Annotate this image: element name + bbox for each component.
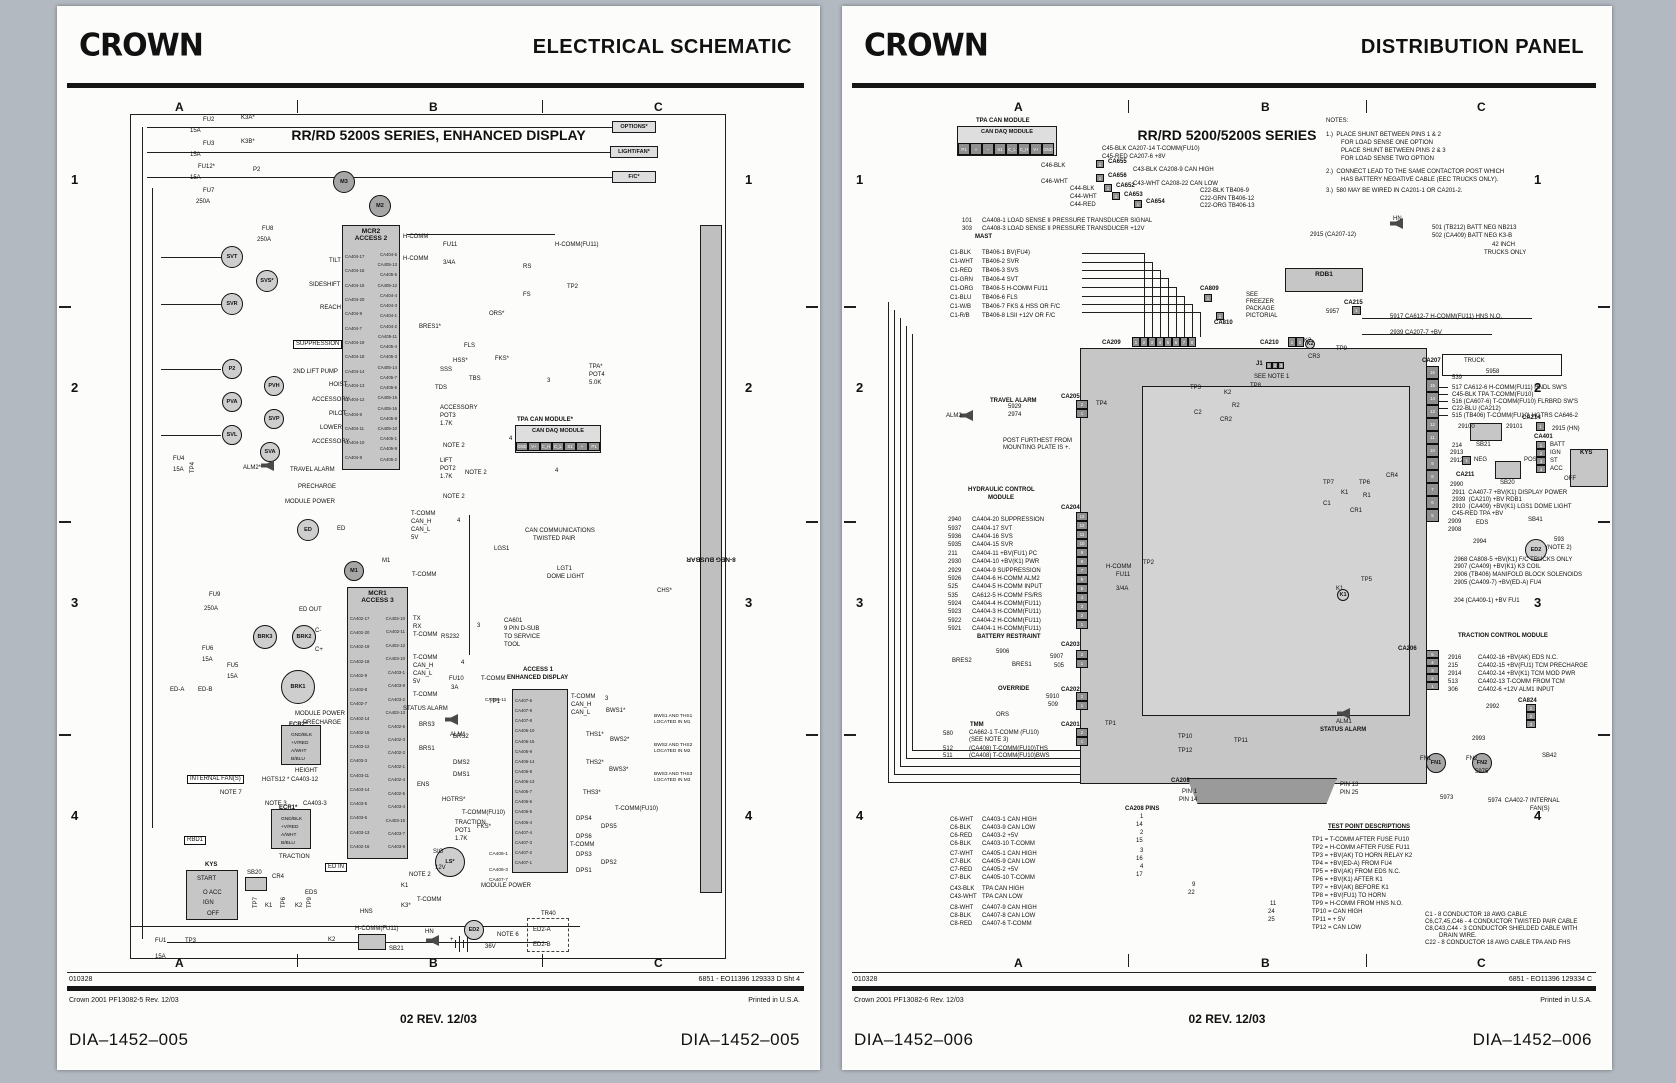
component-circle: ED2 <box>464 920 484 940</box>
wire-line <box>130 114 131 959</box>
connector-pin: 1 <box>1076 620 1088 629</box>
grid-letter: C <box>654 100 663 114</box>
schem-label: SB42 <box>1542 753 1557 760</box>
connector-pin: 5 <box>1164 337 1172 347</box>
block-label: LIGHT/FAN* <box>611 147 657 155</box>
schem-label: POT1 <box>455 828 471 835</box>
schem-label: POT3 <box>440 413 456 420</box>
schem-label: 4 <box>461 660 464 667</box>
schem-label: TB406-3 SVS <box>982 268 1019 275</box>
row-number: 4 <box>745 808 752 823</box>
schem-label: 15A <box>227 674 238 681</box>
schem-label: POST FURTHEST FROM <box>1003 438 1072 445</box>
row-number: 3 <box>71 595 78 610</box>
speaker-icon <box>445 714 458 725</box>
grid-letter: A <box>1014 956 1023 970</box>
connector-strip: 21 <box>1076 400 1088 418</box>
schem-label: 17 <box>1136 872 1143 879</box>
row-number: 1 <box>856 172 863 187</box>
schem-label: C45-BLK TPA T-COMM(FU10) <box>1452 392 1533 399</box>
schem-label: CA404-15 SVR <box>972 542 1013 549</box>
schem-label: CA201 <box>1061 722 1080 729</box>
document-canvas: AABBCC11223344MCR2ACCESS 2CA404-17 CA404… <box>0 0 1676 1083</box>
schem-label: ED OUT <box>299 607 322 614</box>
page-electrical-schematic: AABBCC11223344MCR2ACCESS 2CA404-17 CA404… <box>57 6 820 1070</box>
schem-label: TP7 = +BV(AK) BEFORE K1 <box>1312 885 1389 892</box>
connector-pin: 7 <box>1180 337 1188 347</box>
schem-label: ALM2* <box>243 465 261 472</box>
printed-note: Printed in U.S.A. <box>748 997 800 1004</box>
schem-label: CA407-9 CAN HIGH <box>982 905 1037 912</box>
schem-label: CA403-3 <box>303 801 327 808</box>
wire-line <box>463 940 464 948</box>
schem-label: CA654 <box>1146 199 1165 206</box>
schem-label: C46-BLK <box>1041 163 1065 170</box>
wire-line <box>1366 100 1367 113</box>
schem-label: 511 <box>943 753 953 760</box>
schem-label: 29101 <box>1506 424 1523 431</box>
schem-label: T-COMM <box>411 511 435 518</box>
schem-label: PLACE SHUNT BETWEEN PINS 2 & 3 <box>1341 148 1446 155</box>
crown-logo: CROWN <box>864 27 988 64</box>
schem-label: EDS <box>305 890 317 897</box>
schem-label: DPS3 <box>576 852 592 859</box>
schem-label: ECR1* <box>279 805 297 812</box>
connector-strip: 21 <box>1076 692 1088 710</box>
schem-label: H-COMM <box>1106 564 1131 571</box>
schem-label: TP6 <box>281 897 288 908</box>
wire-line <box>1144 253 1145 337</box>
schem-label: CA402-6 +12V ALM1 INPUT <box>1478 687 1554 694</box>
schem-label: POT2 <box>440 466 456 473</box>
schem-label: K1 <box>401 883 408 890</box>
schem-label: + <box>450 937 454 944</box>
wire-line <box>888 302 889 782</box>
schem-label: POT4 <box>589 372 605 379</box>
component-circle: SVA <box>260 442 280 462</box>
component-circle: M1 <box>344 561 364 581</box>
wire-line <box>1176 287 1177 337</box>
connector-pin: 1 <box>1104 184 1112 192</box>
schem-label: CA404-17 SVT <box>972 526 1012 533</box>
wire-line <box>1082 312 1200 313</box>
wire-line <box>59 306 71 308</box>
speaker-icon <box>426 935 439 946</box>
schem-label: CAN COMMUNICATIONS <box>525 528 595 535</box>
doc-number-right: DIA–1452–006 <box>1473 1030 1592 1050</box>
grid-letter: A <box>175 100 184 114</box>
wire-line <box>1082 262 1152 263</box>
schem-label: OFF <box>207 911 219 918</box>
schem-label: ALM2 <box>946 413 962 420</box>
connector-strip: 13121110987654321 <box>1076 512 1088 629</box>
component-circle: PVH <box>264 376 284 396</box>
schem-label: 2.) CONNECT LEAD TO THE SAME CONTACTOR P… <box>1326 169 1504 176</box>
schem-label: C1-W/B <box>950 304 971 311</box>
schem-label: 101 <box>962 218 972 225</box>
schem-label: FAN(S) <box>1530 806 1550 813</box>
component-circle: BRK3 <box>253 625 277 649</box>
schem-label: CA401 <box>1534 434 1553 441</box>
wire-line <box>459 936 460 952</box>
schem-label: 2929 <box>948 568 961 575</box>
connector-strip: 12 <box>1288 337 1304 347</box>
schem-label: 5917 CA612-7 H-COMM(FU11) HNS N.O. <box>1390 314 1502 321</box>
schem-label: 513 <box>1448 679 1458 686</box>
schem-label: 5906 <box>996 649 1009 656</box>
revision: 02 REV. 12/03 <box>57 1012 820 1026</box>
connector-pin: C_H <box>1018 143 1030 155</box>
connector-pin: 4 <box>1076 593 1088 602</box>
schem-label: (SEE NOTE 3) <box>969 737 1008 744</box>
schem-label: C22-BLK TB406-9 <box>1200 188 1249 195</box>
connector-pin: 1 <box>1288 337 1296 347</box>
wire-line <box>542 100 543 113</box>
schem-label: TB406-7 FKS & HSS OR F/C <box>982 304 1060 311</box>
schem-label: HN <box>1393 216 1402 223</box>
schem-label: CA404-16 SVS <box>972 534 1013 541</box>
schem-label: CA403-1 CAN HIGH <box>982 817 1037 824</box>
connector-strip: 12345678 <box>1132 337 1196 347</box>
schem-label: FU5 <box>227 663 238 670</box>
schem-label: TB406-5 H-COMM FU11 <box>982 286 1048 293</box>
schem-label: 3 <box>1140 848 1143 855</box>
schem-label: TBS <box>469 376 481 383</box>
connector-pin: 1 <box>1096 174 1104 182</box>
schem-label: A/WHT <box>281 833 296 838</box>
schem-label: CA405-2 +5V <box>982 867 1018 874</box>
schem-label: CAN_H <box>571 702 591 709</box>
schem-label: TB406-1 BV(FU4) <box>982 250 1030 257</box>
schem-label: 9 <box>1192 882 1195 889</box>
schem-label: FU2 <box>203 117 214 124</box>
grid-letter: B <box>1261 956 1270 970</box>
schem-label: 2968 CA808-5 +BV(K1) F/C TRUCKS ONLY <box>1454 557 1572 564</box>
connector-pin: 3 <box>1148 337 1156 347</box>
wire-line <box>407 234 555 235</box>
schem-label: CAN_L <box>571 710 590 717</box>
schem-label: KYS <box>205 862 217 869</box>
schem-label: 15A <box>190 152 201 159</box>
schem-label: LOCATED IN M2 <box>654 749 690 754</box>
schem-label: TB406-8 LSII +12V OR F/C <box>982 313 1055 320</box>
schem-label: 2940 <box>948 517 961 524</box>
schem-label: ACCESSORY <box>312 397 350 404</box>
schem-label: CR3 <box>1308 354 1320 361</box>
schem-label: CA404-20 SUPPRESSION <box>972 517 1044 524</box>
schem-label: TP7 <box>253 897 260 908</box>
schem-label: 525 <box>948 584 958 591</box>
footer-bar <box>852 986 1596 991</box>
schem-label: CA408-3 LOAD SENSE II PRESSURE TRANSDUCE… <box>982 226 1144 233</box>
schem-label: START <box>197 876 216 883</box>
component-circle: P2 <box>222 359 242 379</box>
schem-label: C22-ORG TB406-13 <box>1200 203 1255 210</box>
schem-label: CA202 <box>1061 687 1080 694</box>
schem-label: C43-BLK CA208-9 CAN HIGH <box>1133 167 1214 174</box>
connector-pin: 14 <box>1426 392 1439 405</box>
schem-label: TP4 <box>1096 401 1107 408</box>
schem-label: 12V <box>435 865 446 872</box>
schem-label: ED2-B <box>533 942 551 949</box>
wire-line <box>59 734 71 736</box>
schem-label: 25 <box>1268 917 1275 924</box>
schem-label: LGS1 <box>494 546 509 553</box>
schem-label: T-COMM <box>571 694 595 701</box>
connector-pin: 4 <box>1156 337 1164 347</box>
connector-strip: 1 <box>1104 184 1112 192</box>
footer-bar <box>67 986 804 991</box>
schem-label: PACKAGE <box>1246 306 1275 313</box>
schem-label: C7-BLK <box>950 859 971 866</box>
schem-label: SB20 <box>247 870 262 877</box>
schem-label: H-COMM <box>403 256 428 263</box>
connector-pin: P1 <box>958 143 970 155</box>
schem-label: K1 <box>1341 490 1348 497</box>
schem-label: C8,C43,C44 - 3 CONDUCTOR SHIELDED CABLE … <box>1425 926 1577 933</box>
wire-line <box>161 257 221 258</box>
schem-label: BWS3* <box>609 767 628 774</box>
schem-label: C8-BLK <box>950 913 971 920</box>
connector-pin: 3 <box>1076 602 1088 611</box>
component-circle: SVS* <box>256 270 278 292</box>
module-block <box>245 877 267 891</box>
wire-line <box>1366 954 1367 967</box>
schem-label: CA204 <box>1061 505 1080 512</box>
schem-label: PIN 1 <box>1182 789 1197 796</box>
schem-label: 2911 CA407-7 +BV(K1) DISPLAY POWER <box>1452 490 1567 497</box>
module-block: F/C* <box>612 171 656 183</box>
schem-label: SB21 <box>389 946 404 953</box>
schem-label: OVERRIDE <box>998 686 1029 693</box>
footer-rule <box>852 972 1596 973</box>
schem-label: ED-A <box>170 687 184 694</box>
schem-label: C46-WHT <box>1041 179 1068 186</box>
schem-label: PIN 13 <box>1340 782 1358 789</box>
connector-pin: 1 <box>1112 192 1120 200</box>
schem-label: SSS <box>440 367 452 374</box>
schem-label: H-COMM(FU11) <box>355 926 399 933</box>
footer-code-right: 6851 - EO11396 129334 C <box>1509 976 1592 983</box>
wire-line <box>161 369 221 370</box>
schem-label: R2 <box>1232 403 1240 410</box>
wire-line <box>130 958 726 959</box>
schem-label: J1 <box>1256 361 1263 368</box>
schem-label: CA407-8 CAN LOW <box>982 913 1035 920</box>
row-number: 1 <box>71 172 78 187</box>
schem-label: BRS2 <box>453 734 469 741</box>
schem-label: C22-GRN TB406-12 <box>1200 196 1254 203</box>
component-circle: M2 <box>369 195 391 217</box>
schem-label: 3A <box>451 685 458 692</box>
connector-pin: S1 <box>564 442 576 451</box>
schem-label: TRUCK <box>1464 358 1485 365</box>
schem-label: ECR2* <box>289 722 307 729</box>
schem-label: 2915 (HN) <box>1552 426 1580 433</box>
schem-label: TP1 <box>1105 721 1116 728</box>
block-label: MCR1ACCESS 3 <box>348 588 407 605</box>
module-block: LIGHT/FAN* <box>610 146 658 158</box>
schem-label: 211 <box>948 551 958 558</box>
connector-strip: 1615141312111098765 <box>1426 366 1439 522</box>
schem-label: PILOT <box>329 411 346 418</box>
connector-strip: 54321 <box>1426 650 1439 690</box>
wire-line <box>130 114 726 115</box>
schem-label: 502 (CA409) BATT NEG K3-B <box>1432 233 1512 240</box>
schem-label: CA405-9 CAN LOW <box>982 859 1035 866</box>
block-label: CAN DAQ MODULE <box>516 426 600 434</box>
wire-line <box>906 326 907 758</box>
schem-label: CA656 <box>1108 173 1127 180</box>
schem-label: CR4 <box>272 874 284 881</box>
wire-line <box>806 521 818 523</box>
connector-pin: 1 <box>1076 737 1088 746</box>
schem-label: C1-ORG <box>950 286 973 293</box>
connector-strip: 1 <box>1134 200 1142 208</box>
connector-strip: 1 <box>1204 294 1212 302</box>
connector-pin: 1 <box>1216 312 1224 320</box>
schem-label: TP7 <box>1323 480 1334 487</box>
schem-label: A/WHT <box>291 749 306 754</box>
schem-label: 11 <box>1270 901 1276 908</box>
schem-label: 3 <box>547 378 550 385</box>
schem-label: T-COMM <box>417 897 441 904</box>
schem-label: MODULE <box>988 495 1014 502</box>
schem-label: TP6 <box>1359 480 1370 487</box>
schem-label: DPS1 <box>576 868 592 875</box>
schem-label: 306 <box>1448 687 1458 694</box>
schem-label: HEIGHT <box>295 768 318 775</box>
schem-label: PIN 14 <box>1179 797 1197 804</box>
schem-label: CA404-1 H-COMM(FU11) <box>972 626 1041 633</box>
schem-label: CHS* <box>657 588 672 595</box>
schem-label: 5937 <box>948 526 961 533</box>
schem-label: TP10 = CAN HIGH <box>1312 909 1363 916</box>
schem-label: DMS1 <box>453 772 470 779</box>
connector-pin: 3 <box>1526 720 1536 728</box>
schem-label: TB406-6 FLS <box>982 295 1018 302</box>
wire-line <box>152 188 153 828</box>
grid-letter: A <box>1014 100 1023 114</box>
schem-label: DPS6 <box>576 834 592 841</box>
pin-column-left: CA407-6 CA407-9 CA407-8 CA406-10 CA406-1… <box>515 696 534 868</box>
wire-line <box>1082 253 1144 254</box>
wire-line <box>297 100 298 113</box>
schem-label: FU6 <box>202 646 213 653</box>
connector-pin: C_H <box>540 442 552 451</box>
wire-line <box>297 954 298 967</box>
schem-label: C7-RED <box>950 867 972 874</box>
wire-line <box>455 940 456 948</box>
schem-label: T-COMM(FU10) <box>615 806 658 813</box>
schem-label: CA404-5 H-COMM INPUT <box>972 584 1042 591</box>
schem-label: TP4 <box>190 462 197 473</box>
schem-label: NOTE 2 <box>443 443 465 450</box>
connector-pin: 2 <box>1076 400 1088 409</box>
schem-label: CR2 <box>1220 417 1232 424</box>
connector-pin: C_L <box>552 442 564 451</box>
schem-label: CA402-14 +BV(K1) TCM MOD PWR <box>1478 671 1575 678</box>
component-circle: SVR <box>221 293 243 315</box>
schem-label: CAN_L <box>413 671 432 678</box>
module-block <box>1495 461 1521 479</box>
schem-label: THS2* <box>586 760 604 767</box>
schem-label: 3 <box>605 696 608 703</box>
schem-label: C6-RED <box>950 833 972 840</box>
schem-label: FLS <box>464 343 475 350</box>
schem-label: CR4 <box>1386 473 1398 480</box>
schem-label: 2994 <box>1473 539 1486 546</box>
schem-label: 3/4A <box>443 260 455 267</box>
wire-line <box>161 304 221 305</box>
schem-label: FU4 <box>173 456 184 463</box>
schem-label: SB41 <box>1528 517 1543 524</box>
connector-pin: 1 <box>1352 306 1361 315</box>
connector-pin: 1 <box>1076 659 1088 668</box>
schem-label: CA403-10 T-COMM <box>982 841 1035 848</box>
schem-label: C8-RED <box>950 921 972 928</box>
schem-label: 16 <box>1136 856 1143 863</box>
connector-pin: GND <box>516 442 528 451</box>
schem-label: ACC <box>1550 466 1563 473</box>
schem-label: CA404-6 H-COMM ALM2 <box>972 576 1040 583</box>
schem-label: 580 <box>943 731 953 738</box>
connector-strip: 1 <box>1216 312 1224 320</box>
schem-label: CA408-1 LOAD SENSE II PRESSURE TRANSDUCE… <box>982 218 1152 225</box>
schem-label: TPA CAN HIGH <box>982 886 1024 893</box>
schem-label: 2909 <box>1448 519 1461 526</box>
schem-label: SUPPRESSION <box>293 340 342 349</box>
wire-line <box>161 435 221 436</box>
module-block: CA407-6 CA407-9 CA407-8 CA406-10 CA406-1… <box>512 689 568 873</box>
schem-label: 5924 <box>948 601 961 608</box>
schem-label: 5926 <box>948 576 961 583</box>
connector-pin: 6 <box>1076 575 1088 584</box>
schem-label: 3 <box>477 623 480 630</box>
schem-label: TP9 = H-COMM FROM HNS N.O. <box>1312 901 1403 908</box>
schem-label: DPS5 <box>601 824 617 831</box>
schem-label: DMS2 <box>453 760 470 767</box>
schem-label: CA402-16 +BV(AK) EDS N.C. <box>1478 655 1558 662</box>
schem-label: POS <box>1524 457 1537 464</box>
schem-label: CA405-1 CAN HIGH <box>982 851 1037 858</box>
schem-label: C1-GRN <box>950 277 973 284</box>
schem-label: C45-BLK CA207-14 T-COMM(FU10) <box>1102 146 1200 153</box>
schem-label: (CA408) T-COMM(FU10)BWS <box>969 753 1050 760</box>
schem-label: INTERNAL FAN(S) <box>187 775 244 784</box>
schem-label: CA652 <box>1116 183 1135 190</box>
schem-label: TP3 <box>1190 385 1201 392</box>
schem-label: K1 <box>265 903 272 910</box>
schem-label: HNS <box>360 909 373 916</box>
schem-label: C22 - 8 CONDUCTOR 18 AWG CABLE TPA AND F… <box>1425 940 1570 947</box>
schem-label: FN1 <box>1420 756 1431 763</box>
wire-line <box>1160 270 1161 337</box>
schem-label: TRACTION CONTROL MODULE <box>1458 633 1548 640</box>
schem-label: TRACTION <box>455 820 486 827</box>
doc-number-left: DIA–1452–006 <box>854 1030 973 1050</box>
row-number: 1 <box>745 172 752 187</box>
schem-label: 517 CA612-6 H-COMM(FU11) HNDL SW'S <box>1452 385 1567 392</box>
schem-label: K1 <box>1336 586 1343 593</box>
row-number: 2 <box>856 380 863 395</box>
schem-label: TP2 = H-COMM AFTER FUSE FU11 <box>1312 845 1410 852</box>
footer-code-left: 010328 <box>854 976 877 983</box>
connector-pin: 5 <box>1426 650 1439 658</box>
schem-label: TRACTION <box>279 854 310 861</box>
schem-label: K2 <box>295 903 302 910</box>
connector-pin: V+ <box>528 442 540 451</box>
